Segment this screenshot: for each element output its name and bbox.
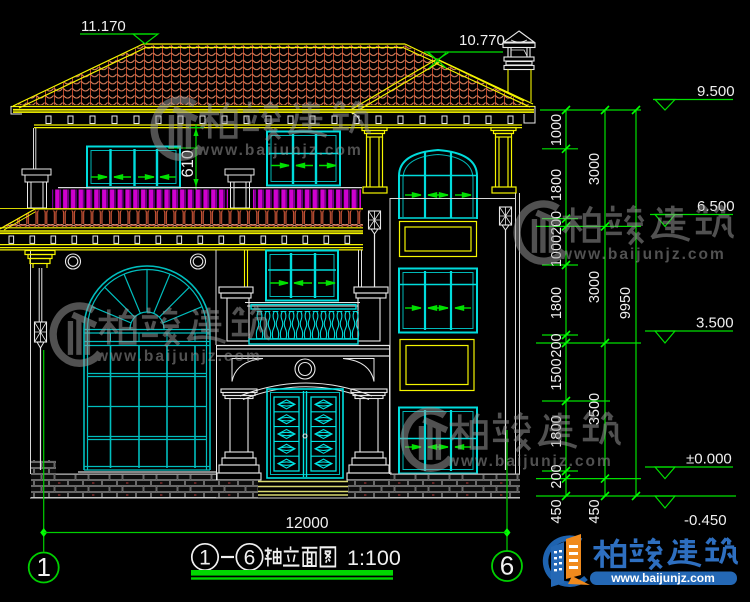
svg-text:6: 6 <box>244 547 256 570</box>
svg-text:9.500: 9.500 <box>697 83 735 100</box>
svg-text:12000: 12000 <box>285 515 328 532</box>
svg-text:1500: 1500 <box>549 358 565 390</box>
svg-text:450: 450 <box>549 499 565 523</box>
svg-text:6: 6 <box>500 551 514 581</box>
svg-text:1800: 1800 <box>549 169 565 201</box>
svg-text:11.170: 11.170 <box>81 18 126 35</box>
svg-text:9950: 9950 <box>618 287 634 319</box>
svg-text:3500: 3500 <box>587 393 603 425</box>
svg-text:450: 450 <box>587 499 603 523</box>
svg-text:±0.000: ±0.000 <box>686 451 732 468</box>
svg-text:www.baijunjz.com: www.baijunjz.com <box>610 571 715 585</box>
svg-text:3000: 3000 <box>587 271 603 303</box>
svg-text:www.baijunjz.com: www.baijunjz.com <box>95 348 262 365</box>
svg-text:3.500: 3.500 <box>696 315 734 332</box>
svg-text:1: 1 <box>199 547 211 570</box>
svg-text:www.baijunjz.com: www.baijunjz.com <box>559 246 726 263</box>
svg-text:10.770: 10.770 <box>459 32 505 49</box>
svg-text:-0.450: -0.450 <box>684 512 727 529</box>
svg-text:1800: 1800 <box>549 287 565 319</box>
svg-text:www.baijunjz.com: www.baijunjz.com <box>446 453 613 470</box>
svg-text:1000: 1000 <box>549 114 565 146</box>
svg-text:1:100: 1:100 <box>347 546 401 570</box>
svg-text:1: 1 <box>36 552 50 582</box>
svg-text:www.baijunjz.com: www.baijunjz.com <box>196 142 363 159</box>
svg-text:3000: 3000 <box>587 153 603 185</box>
svg-text:200: 200 <box>549 333 565 357</box>
